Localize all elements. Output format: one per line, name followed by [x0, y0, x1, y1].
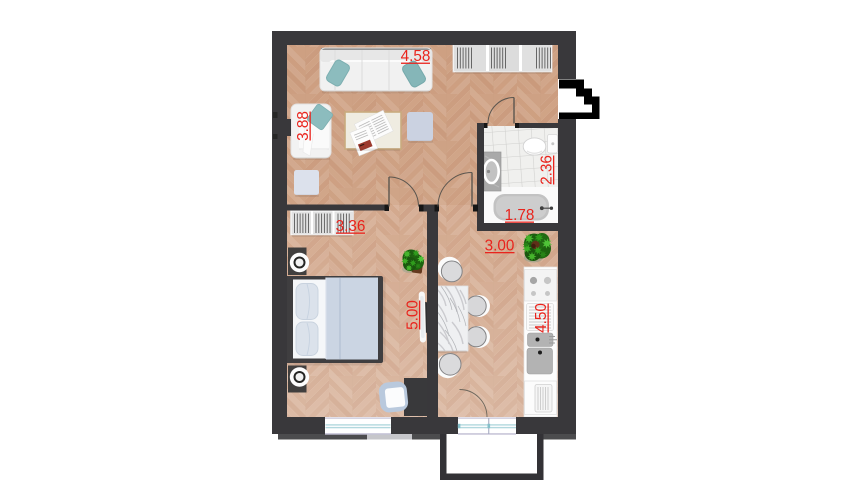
svg-text:3.00: 3.00	[485, 238, 515, 255]
svg-text:1.78: 1.78	[505, 207, 535, 224]
svg-text:4.50: 4.50	[533, 303, 550, 333]
svg-text:5.00: 5.00	[405, 300, 422, 330]
svg-text:2.36: 2.36	[539, 155, 556, 185]
svg-text:3.36: 3.36	[336, 218, 366, 235]
svg-text:3.88: 3.88	[295, 111, 312, 141]
